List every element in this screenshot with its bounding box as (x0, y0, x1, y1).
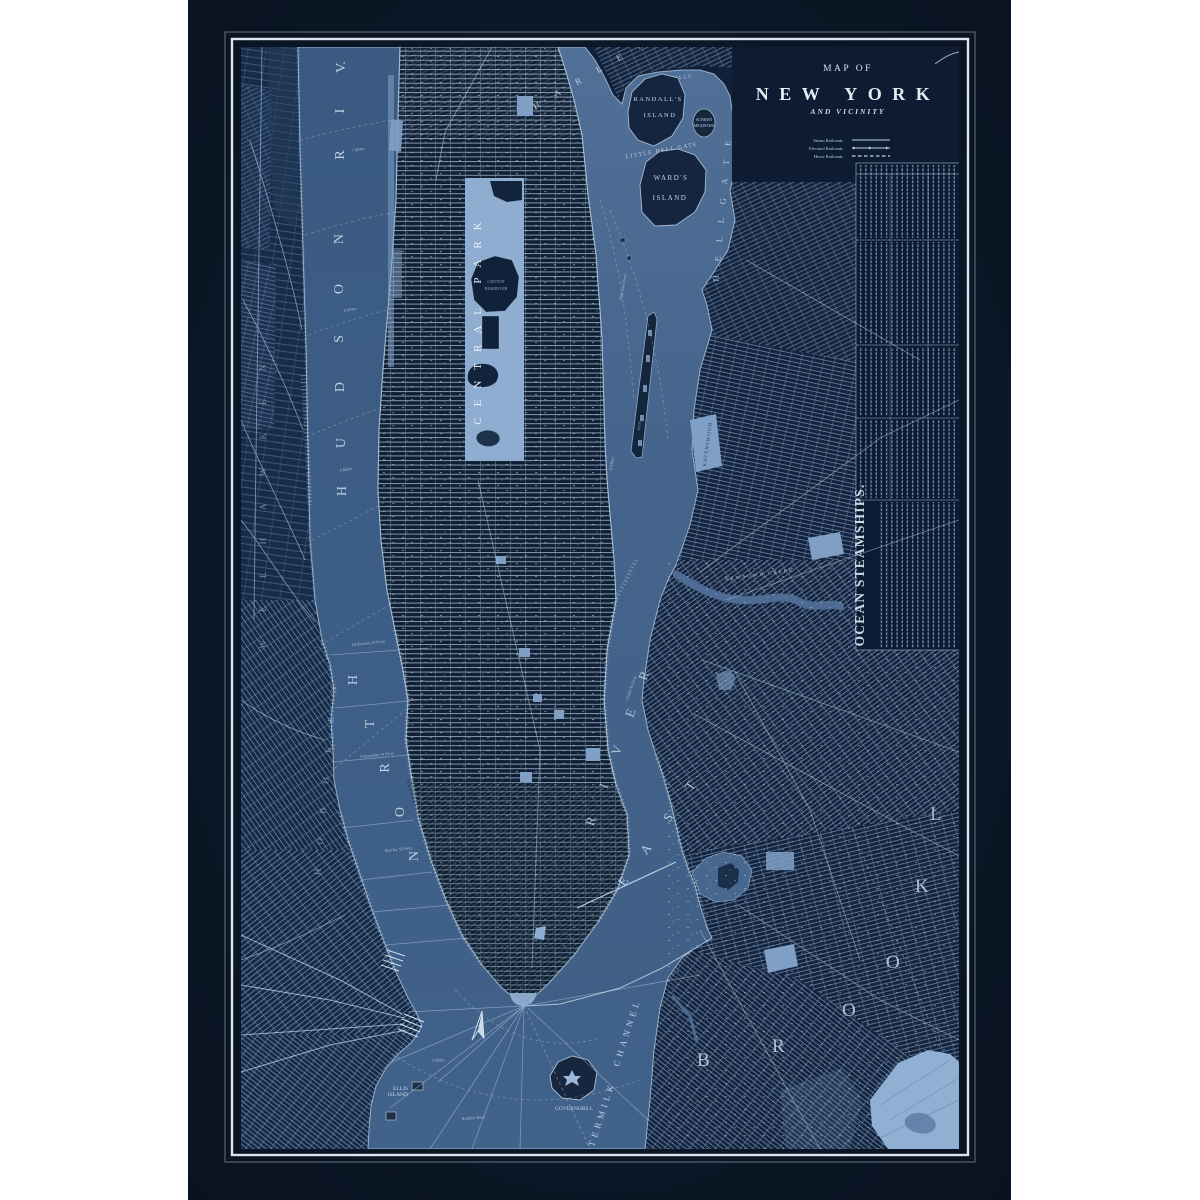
svg-text:AND VICINITY: AND VICINITY (809, 107, 885, 116)
svg-text:MAP OF: MAP OF (823, 64, 873, 74)
svg-text:ISLAND: ISLAND (644, 112, 677, 119)
svg-text:R: R (378, 763, 393, 773)
svg-text:ISLAND: ISLAND (653, 194, 688, 202)
svg-text:V.: V. (334, 61, 349, 73)
svg-text:Horse Railroads: Horse Railroads (814, 154, 843, 159)
svg-text:O: O (842, 1000, 856, 1021)
svg-text:CROTON: CROTON (487, 279, 504, 284)
svg-text:D: D (333, 382, 348, 392)
svg-text:R: R (333, 150, 348, 160)
svg-text:RANDALL'S: RANDALL'S (633, 96, 682, 103)
svg-text:ISLAND: ISLAND (388, 1092, 408, 1098)
svg-text:RESERVOIR: RESERVOIR (485, 286, 508, 291)
svg-text:Ferry: Ferry (636, 420, 642, 430)
svg-text:2 Miles: 2 Miles (432, 1057, 445, 1063)
svg-text:WARD'S: WARD'S (654, 174, 689, 182)
svg-text:N: N (407, 851, 422, 861)
svg-text:NEW YORK: NEW YORK (756, 84, 941, 104)
svg-text:H: H (335, 486, 350, 496)
svg-text:O: O (393, 807, 408, 817)
svg-text:S: S (332, 335, 347, 343)
svg-text:MEADOWS: MEADOWS (694, 123, 715, 128)
svg-text:W E E H A W K E N: W E E H A W K E N (258, 352, 268, 649)
svg-text:GOVERNORS I.: GOVERNORS I. (555, 1106, 594, 1112)
svg-text:I: I (333, 108, 348, 113)
svg-text:OCEAN STEAMSHIPS.: OCEAN STEAMSHIPS. (852, 484, 867, 647)
svg-text:K: K (915, 876, 929, 897)
svg-text:B: B (697, 1050, 710, 1071)
svg-text:CENTRAL PARK: CENTRAL PARK (472, 211, 484, 424)
svg-text:Elevated Railroads: Elevated Railroads (809, 146, 843, 151)
svg-text:L: L (930, 804, 942, 825)
svg-text:N: N (332, 234, 347, 244)
svg-text:O: O (332, 284, 347, 294)
svg-text:U: U (334, 438, 349, 448)
svg-text:SUNKEN: SUNKEN (696, 117, 712, 122)
svg-text:R: R (772, 1036, 785, 1057)
svg-text:Steam Railroads: Steam Railroads (813, 138, 843, 143)
svg-text:T: T (363, 719, 378, 728)
svg-text:O: O (886, 952, 900, 973)
svg-text:H: H (346, 675, 361, 685)
